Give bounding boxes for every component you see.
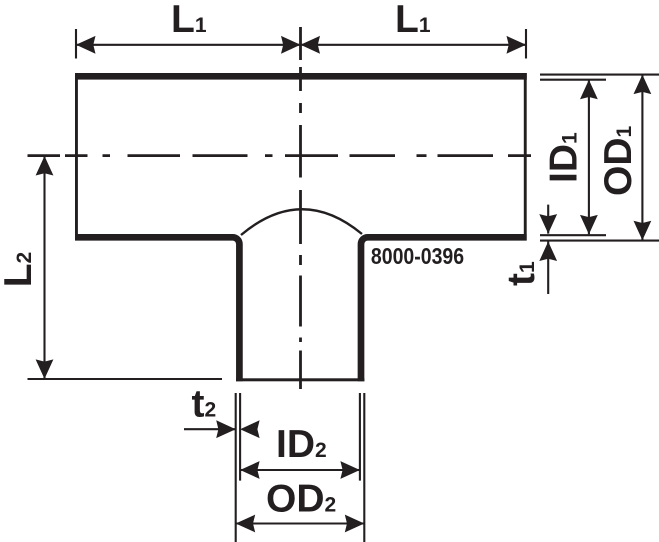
svg-text:8000-0396: 8000-0396 xyxy=(371,242,464,269)
